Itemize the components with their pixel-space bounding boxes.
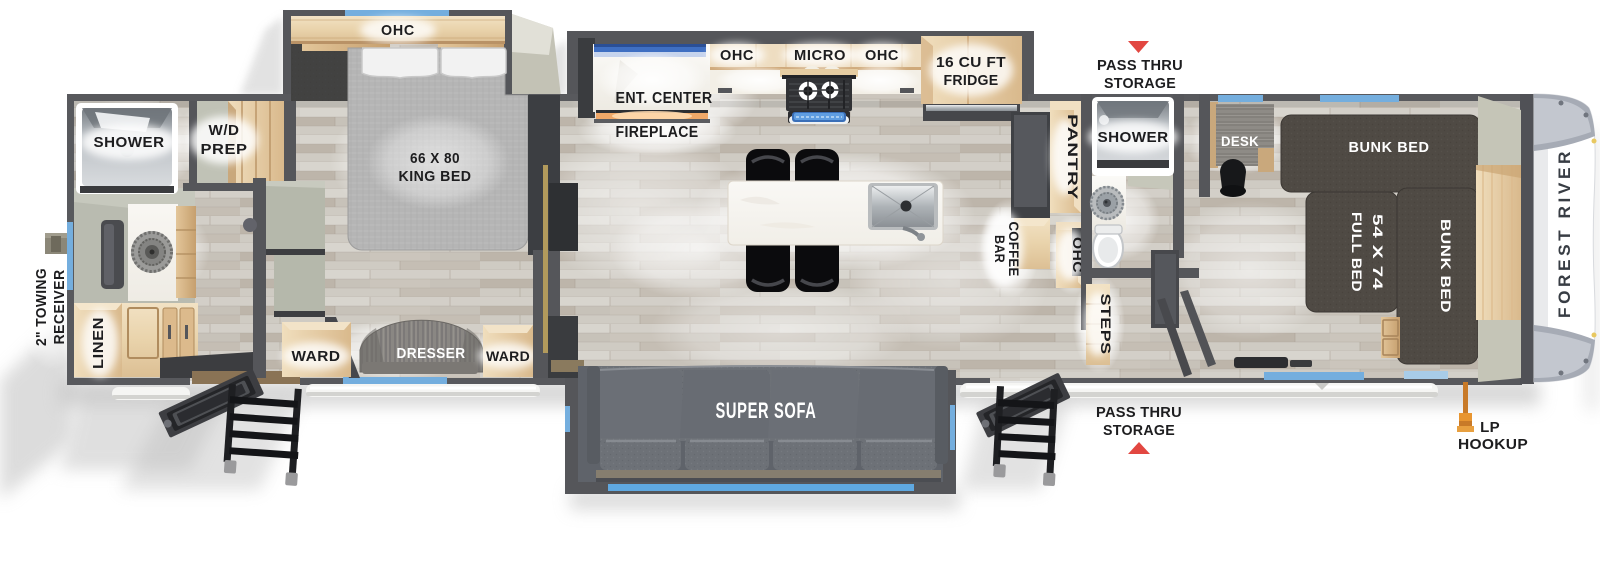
svg-text:FULL BED: FULL BED xyxy=(1349,212,1365,292)
svg-text:WARD: WARD xyxy=(486,348,530,364)
svg-text:66 X 80: 66 X 80 xyxy=(410,150,460,167)
svg-text:KING BED: KING BED xyxy=(399,168,472,185)
svg-text:MICRO: MICRO xyxy=(794,47,846,64)
svg-text:PASS THRU: PASS THRU xyxy=(1096,404,1182,421)
svg-text:FRIDGE: FRIDGE xyxy=(944,72,999,89)
svg-text:WARD: WARD xyxy=(292,348,341,365)
svg-text:FIREPLACE: FIREPLACE xyxy=(616,124,699,141)
svg-text:LP: LP xyxy=(1480,419,1500,436)
svg-text:SUPER SOFA: SUPER SOFA xyxy=(716,398,817,423)
svg-text:BUNK BED: BUNK BED xyxy=(1438,219,1454,313)
svg-text:STORAGE: STORAGE xyxy=(1103,422,1175,439)
svg-text:FOREST RIVER: FOREST RIVER xyxy=(1556,148,1574,318)
svg-text:DESK: DESK xyxy=(1221,133,1259,149)
svg-text:BUNK BED: BUNK BED xyxy=(1349,139,1430,156)
svg-text:OHC: OHC xyxy=(720,47,754,64)
svg-text:OHC: OHC xyxy=(381,22,415,39)
svg-text:STEPS: STEPS xyxy=(1098,294,1114,355)
svg-text:W/D: W/D xyxy=(209,122,240,139)
svg-text:LINEN: LINEN xyxy=(90,317,107,369)
svg-text:BAR: BAR xyxy=(992,235,1008,263)
svg-text:54 X 74: 54 X 74 xyxy=(1370,214,1386,290)
svg-text:PANTRY: PANTRY xyxy=(1065,114,1081,200)
svg-text:ENT. CENTER: ENT. CENTER xyxy=(616,90,713,107)
svg-text:SHOWER: SHOWER xyxy=(1098,129,1169,146)
svg-text:PREP: PREP xyxy=(201,141,248,158)
svg-text:SHOWER: SHOWER xyxy=(94,134,165,151)
svg-text:PASS THRU: PASS THRU xyxy=(1097,57,1183,74)
svg-text:16 CU FT: 16 CU FT xyxy=(936,54,1006,71)
svg-text:STORAGE: STORAGE xyxy=(1104,75,1176,92)
svg-text:RECEIVER: RECEIVER xyxy=(51,270,68,345)
svg-text:2" TOWING: 2" TOWING xyxy=(33,268,50,346)
svg-text:DRESSER: DRESSER xyxy=(397,345,466,362)
svg-text:OHC: OHC xyxy=(865,47,899,64)
svg-text:HOOKUP: HOOKUP xyxy=(1458,436,1528,453)
